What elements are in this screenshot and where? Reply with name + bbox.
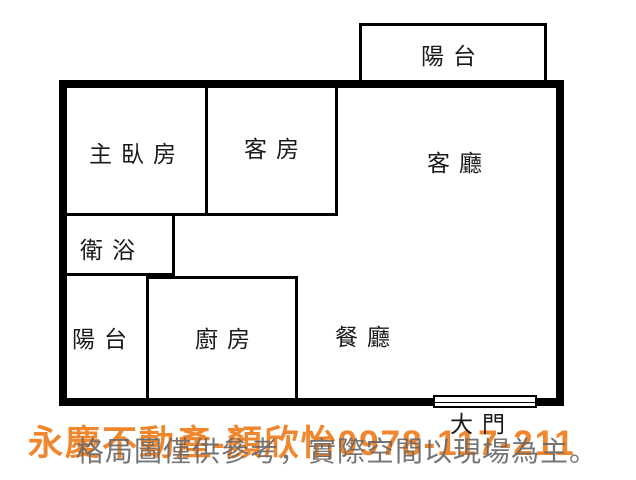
room-label-balcony-top: 陽台	[421, 37, 485, 71]
room-label-kitchen: 廚房	[195, 320, 259, 354]
room-label-dining-room: 餐廳	[335, 318, 399, 352]
main-door-inner-line	[435, 402, 535, 403]
wall-kitchen-right	[295, 276, 298, 398]
disclaimer-watermark: 格局圖僅供參考，實際空間以現場為主。	[76, 438, 598, 466]
room-label-bathroom: 衛浴	[80, 231, 144, 265]
wall-master-guest-divider	[205, 88, 208, 215]
room-balcony-top: 陽台	[359, 23, 547, 84]
room-label-balcony-bottom: 陽台	[72, 320, 136, 354]
room-label-living-room: 客廳	[427, 144, 491, 178]
wall-bathroom-right	[172, 213, 175, 276]
floor-plan-image: 陽台 主臥房 客房 客廳 衛浴 陽台 廚房 餐廳 大門 永慶不動產-顏欣怡097…	[0, 0, 636, 480]
room-label-guest-room: 客房	[244, 130, 308, 164]
wall-bedrooms-bottom	[67, 213, 338, 216]
wall-balcony-kitchen-divider	[146, 276, 149, 398]
room-label-master-bedroom: 主臥房	[89, 135, 185, 169]
wall-guest-living-divider	[335, 88, 338, 216]
wall-kitchen-top	[146, 276, 298, 279]
main-door-label: 大門	[450, 405, 514, 439]
